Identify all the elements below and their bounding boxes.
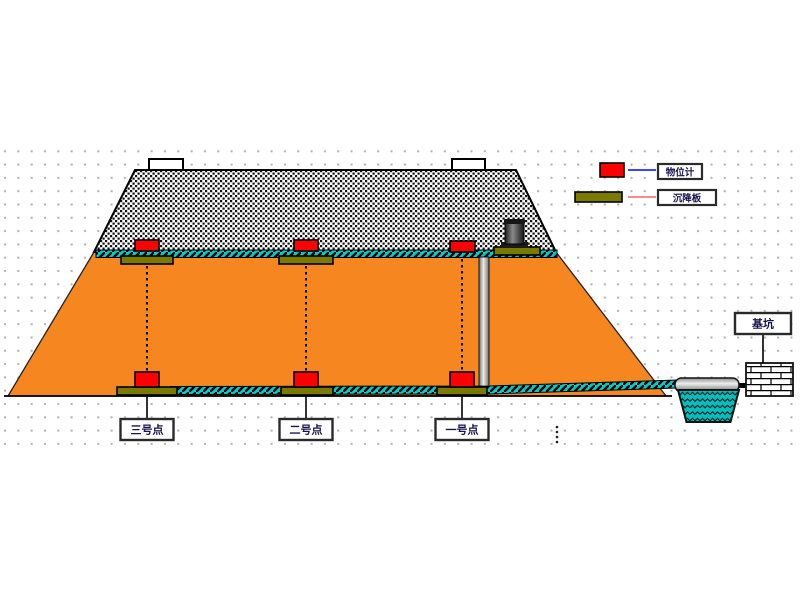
level-gauge-icon <box>450 372 474 387</box>
legend-label-text: 沉降板 <box>673 192 702 204</box>
cylinder-body <box>505 221 524 244</box>
crest-marker-left <box>149 159 183 170</box>
cylinder-base-plate <box>494 247 540 255</box>
settlement-plate-icon <box>117 387 177 395</box>
monitoring-diagram: 三号点 二号点 一号点 基坑 物位计 沉降板 <box>0 0 800 600</box>
point-label-text: 三号点 <box>131 423 164 437</box>
pit-label-text: 基坑 <box>751 317 774 331</box>
legend-label-text: 物位计 <box>666 166 695 178</box>
cylinder-cap <box>504 219 525 224</box>
settlement-plate-icon <box>437 387 487 395</box>
level-gauge-icon <box>450 241 475 252</box>
embankment-body <box>8 252 666 396</box>
upper-station-point-1 <box>450 241 475 252</box>
point-label-text: 一号点 <box>446 423 479 437</box>
settlement-plate-icon <box>279 256 333 264</box>
level-gauge-icon <box>135 372 159 387</box>
water-basin <box>678 390 739 422</box>
masonry-pit-wall <box>746 363 793 396</box>
settlement-plate-icon <box>281 387 333 395</box>
level-gauge-icon <box>135 240 159 251</box>
settlement-plate-swatch-icon <box>575 192 622 202</box>
hmi-canvas: 三号点 二号点 一号点 基坑 物位计 沉降板 <box>0 0 800 600</box>
settlement-plate-icon <box>121 256 173 264</box>
level-gauge-icon <box>294 240 318 251</box>
gravel-crest-layer <box>94 170 556 252</box>
level-gauge-swatch-icon <box>600 163 624 177</box>
riser-pipe <box>479 257 489 388</box>
point-label-text: 二号点 <box>290 423 323 437</box>
crest-marker-right <box>452 159 485 170</box>
level-gauge-icon <box>294 372 318 387</box>
